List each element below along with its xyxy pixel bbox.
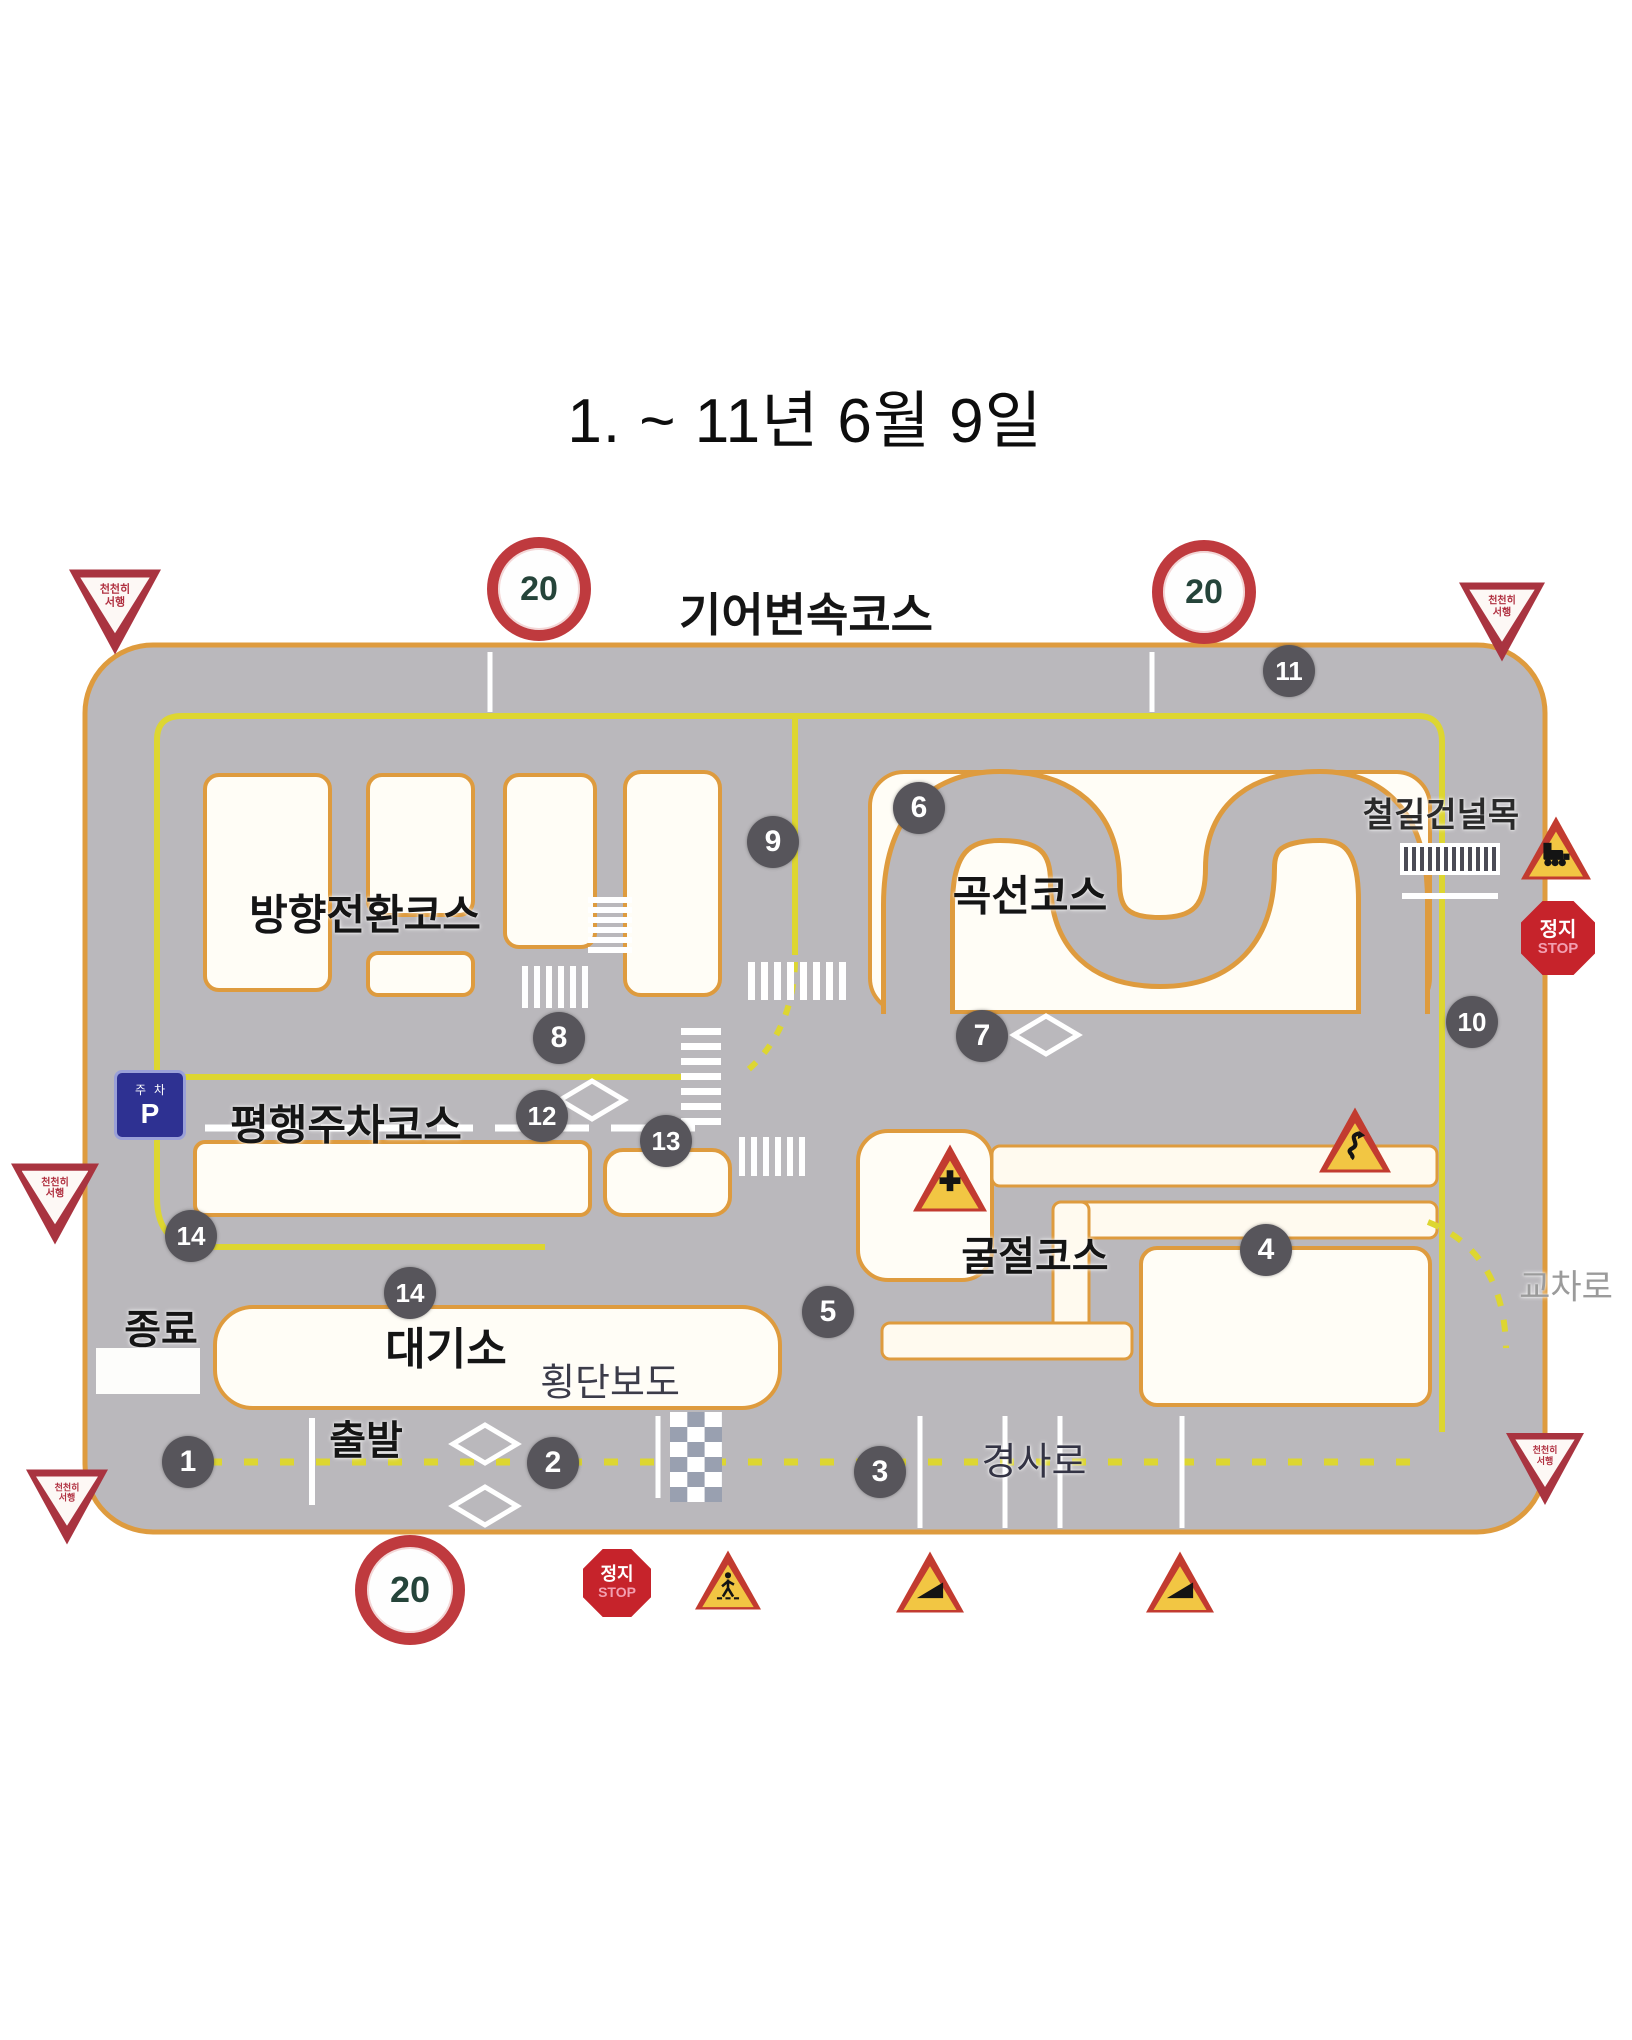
curve-course-label: 곡선코스: [953, 863, 1108, 924]
yield-triangle-icon: 천천히서행: [1506, 1433, 1584, 1505]
yield-sign-bottom-left: 천천히서행: [26, 1470, 108, 1545]
warning-triangle: [1146, 1552, 1214, 1613]
slope-label: 경사로: [982, 1431, 1087, 1486]
stop-sign-right: 정지 STOP: [1521, 901, 1595, 975]
yield-sign-bottom-right: 천천히서행: [1506, 1433, 1584, 1505]
yield-sign-text: 천천히서행: [11, 1177, 99, 1200]
checkpoint-badge-1: 1: [162, 1436, 214, 1488]
waiting-area-label: 대기소: [385, 1313, 506, 1377]
checkpoint-badge-11: 11: [1263, 645, 1315, 697]
stop-sign-icon: 정지 STOP: [1521, 901, 1595, 975]
yield-triangle-icon: 천천히서행: [1459, 583, 1545, 662]
railroad-crossing-label: 철길건널목: [1363, 788, 1519, 837]
parking-korean-text: 주차: [135, 1081, 173, 1098]
checkpoint-badge-4: 4: [1240, 1224, 1292, 1276]
uphill-slope-warning-sign-1: [896, 1552, 964, 1613]
checkpoint-badge-13: 13: [640, 1115, 692, 1167]
checkpoint-badge-5: 5: [802, 1286, 854, 1338]
speed-limit-icon: 20: [487, 537, 591, 641]
yield-sign-text: 천천히서행: [69, 584, 161, 609]
stop-korean-text: 정지: [600, 1565, 633, 1585]
checkpoint-badge-9: 9: [747, 816, 799, 868]
railroad-crossing: [1400, 843, 1500, 875]
yield-sign-left-middle: 천천히서행: [11, 1164, 99, 1245]
parallel-parking-course-label: 평행주차코스: [230, 1092, 462, 1153]
yield-sign-top-right: 천천히서행: [1459, 583, 1545, 662]
uphill-slope-warning-sign-2: [1146, 1552, 1214, 1613]
direction-change-course-label: 방향전환코스: [249, 882, 481, 943]
checkpoint-badge-2: 2: [527, 1437, 579, 1489]
yield-sign-top-left: 천천히서행: [69, 570, 161, 655]
crossroads-warning-sign: [913, 1145, 987, 1212]
warning-triangle: [913, 1145, 987, 1212]
warning-triangle: [896, 1552, 964, 1613]
warning-triangle: [1521, 817, 1591, 880]
speed-limit-20-top-right: 20: [1152, 540, 1256, 644]
warning-triangle: [1319, 1108, 1391, 1173]
intersection-label: 교차로: [1519, 1260, 1613, 1309]
pedestrian-icon: [711, 1569, 745, 1603]
railroad-crossing-warning-sign: [1521, 817, 1591, 880]
yield-triangle-icon: 천천히서행: [26, 1470, 108, 1545]
speed-limit-icon: 20: [1152, 540, 1256, 644]
scurve-icon: [1337, 1128, 1374, 1165]
checkpoint-badge-10: 10: [1446, 996, 1498, 1048]
slope-icon: [913, 1571, 948, 1606]
cross-icon: [931, 1166, 969, 1204]
finish-checker: [670, 1412, 722, 1502]
course-map-graphic: [0, 0, 1632, 2040]
driving-course-map: 1. ~ 11년 6월 9일: [0, 0, 1632, 2040]
checkpoint-badge-14: 14: [384, 1267, 436, 1319]
checkpoint-badge-7: 7: [956, 1010, 1008, 1062]
start-label: 출발: [329, 1408, 403, 1466]
stop-korean-text: 정지: [1540, 919, 1577, 941]
checkpoint-badge-8: 8: [533, 1012, 585, 1064]
checkpoint-badge-6: 6: [893, 782, 945, 834]
train-icon: [1538, 836, 1574, 872]
yield-sign-text: 천천히서행: [26, 1482, 108, 1503]
yield-sign-text: 천천히서행: [1506, 1445, 1584, 1466]
stop-sign-bottom: 정지 STOP: [583, 1549, 651, 1617]
checkpoint-badge-3: 3: [854, 1446, 906, 1498]
yield-triangle-icon: 천천히서행: [69, 570, 161, 655]
double-bend-warning-sign: [1319, 1108, 1391, 1173]
checkpoint-badge-14: 14: [165, 1210, 217, 1262]
warning-triangle: [695, 1551, 761, 1610]
stop-sign-icon: 정지 STOP: [583, 1549, 651, 1617]
yield-triangle-icon: 천천히서행: [11, 1164, 99, 1245]
slope-icon: [1163, 1571, 1198, 1606]
articulated-course-label: 굴절코스: [961, 1224, 1108, 1282]
stop-english-text: STOP: [598, 1585, 636, 1600]
speed-limit-20-bottom: 20: [355, 1535, 465, 1645]
parking-p-text: P: [141, 1098, 160, 1130]
speed-limit-20-top-left: 20: [487, 537, 591, 641]
pedestrian-crossing-warning-sign: [695, 1551, 761, 1610]
checkpoint-badge-12: 12: [516, 1090, 568, 1142]
parking-sign: 주차 P: [114, 1070, 186, 1140]
end-label: 종료: [124, 1297, 198, 1355]
yield-sign-text: 천천히서행: [1459, 596, 1545, 619]
parking-sign-icon: 주차 P: [114, 1070, 186, 1140]
stop-english-text: STOP: [1538, 941, 1579, 958]
speed-limit-icon: 20: [355, 1535, 465, 1645]
gear-shift-course-label: 기어변속코스: [679, 579, 933, 645]
crosswalk-label: 횡단보도: [540, 1352, 680, 1407]
